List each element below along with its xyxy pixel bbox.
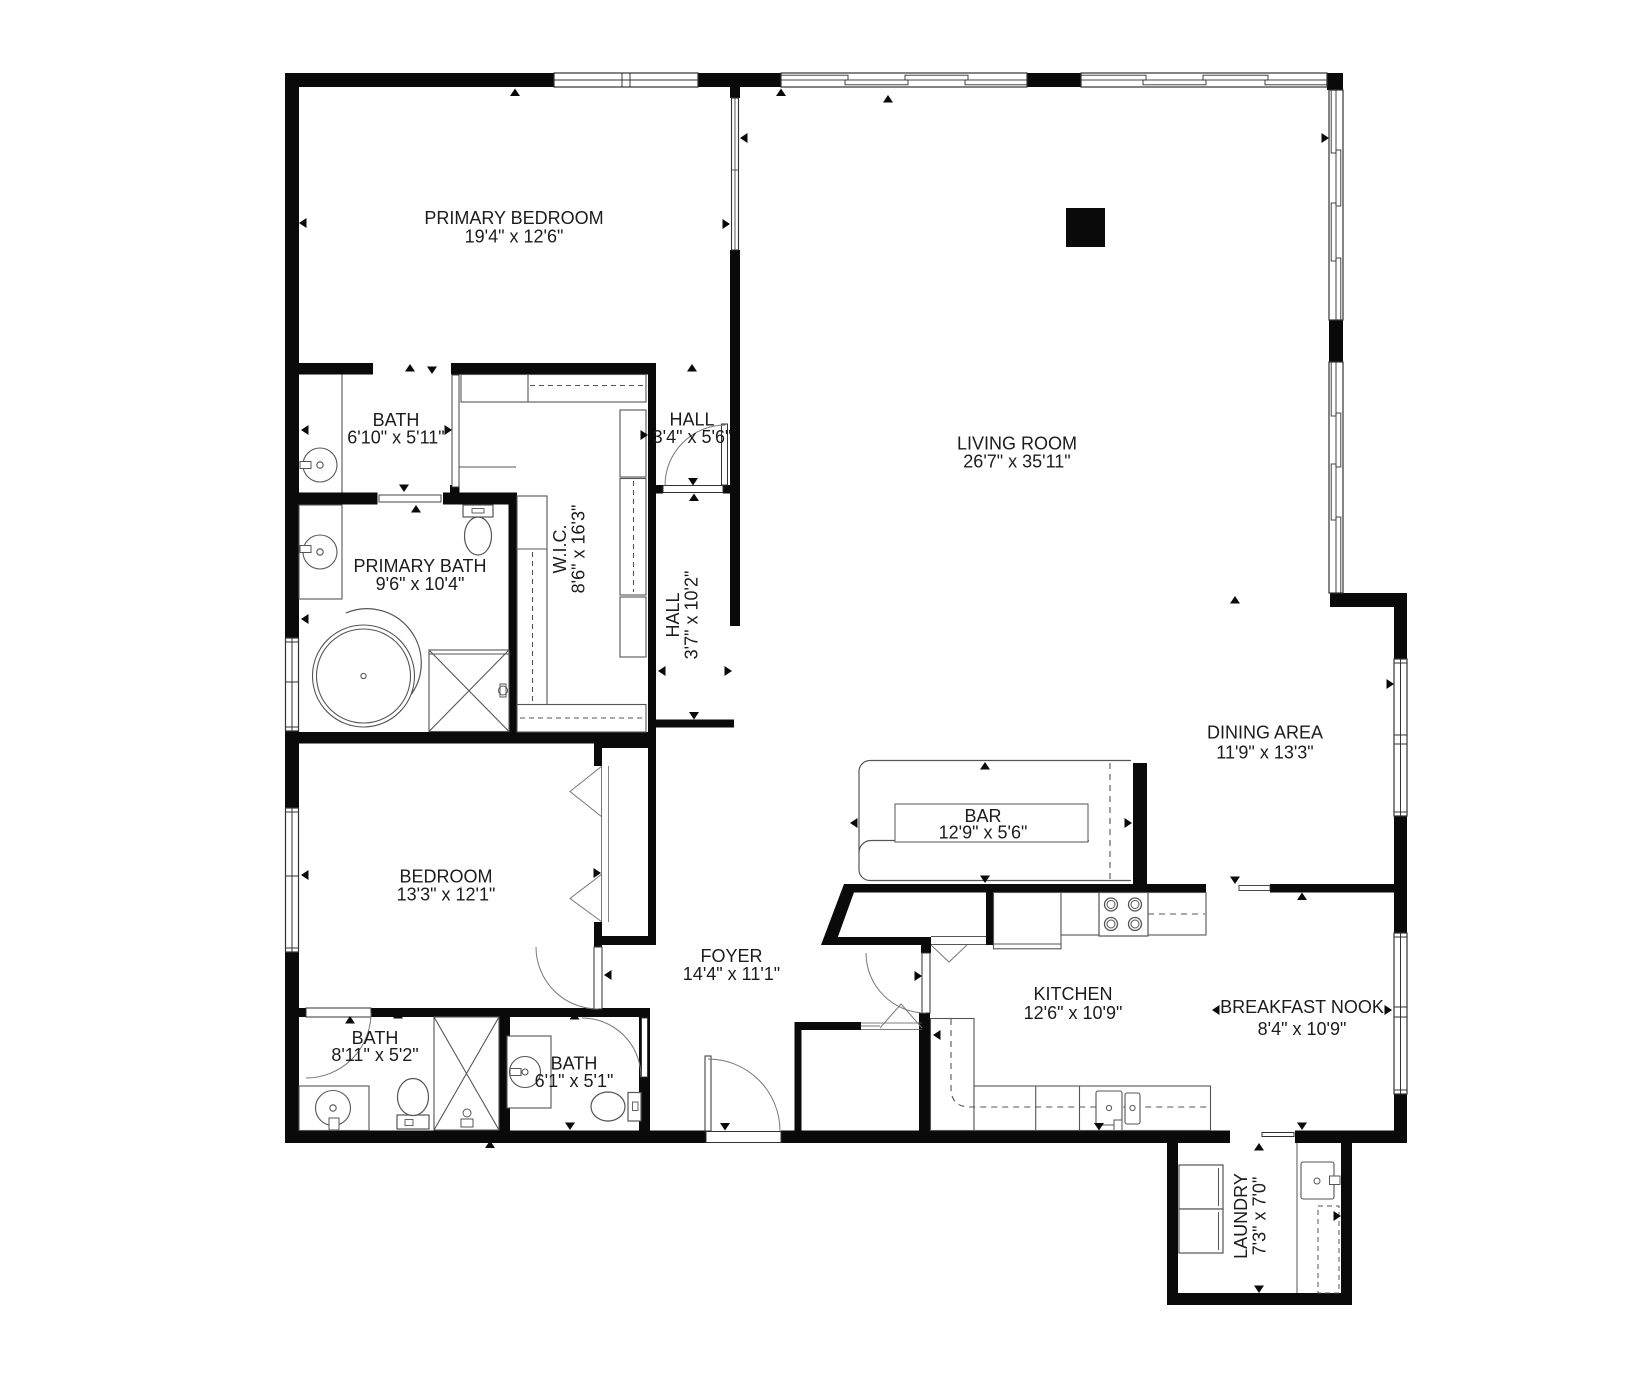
svg-text:HALL: HALL [663,592,683,637]
svg-text:9'6" x 10'4": 9'6" x 10'4" [376,574,465,594]
svg-text:3'4" x 5'6": 3'4" x 5'6" [653,427,732,447]
svg-text:LAUNDRY: LAUNDRY [1231,1173,1251,1259]
svg-text:12'9" x 5'6": 12'9" x 5'6" [939,823,1028,843]
svg-text:26'7" x 35'11": 26'7" x 35'11" [963,452,1070,472]
svg-text:19'4" x 12'6": 19'4" x 12'6" [465,227,564,247]
svg-text:3'7" x 10'2": 3'7" x 10'2" [682,571,702,660]
svg-text:PRIMARY BEDROOM: PRIMARY BEDROOM [424,208,603,228]
svg-text:8'6" x 16'3": 8'6" x 16'3" [569,505,589,594]
svg-text:14'4" x 11'1": 14'4" x 11'1" [683,964,780,984]
svg-text:11'9" x 13'3": 11'9" x 13'3" [1216,743,1313,763]
svg-text:KITCHEN: KITCHEN [1033,984,1112,1004]
svg-text:8'11" x 5'2": 8'11" x 5'2" [331,1045,418,1065]
svg-text:8'4" x 10'9": 8'4" x 10'9" [1258,1019,1347,1039]
svg-text:PRIMARY BATH: PRIMARY BATH [353,556,486,576]
svg-text:13'3" x 12'1": 13'3" x 12'1" [397,885,496,905]
svg-text:BEDROOM: BEDROOM [399,867,492,887]
svg-text:W.I.C.: W.I.C. [550,525,570,574]
svg-text:LIVING ROOM: LIVING ROOM [957,434,1077,454]
svg-text:6'10" x 5'11": 6'10" x 5'11" [347,428,444,448]
svg-text:7'3" x 7'0": 7'3" x 7'0" [1250,1177,1270,1256]
svg-text:6'1" x 5'1": 6'1" x 5'1" [535,1071,614,1091]
svg-text:BREAKFAST NOOK: BREAKFAST NOOK [1220,997,1384,1017]
svg-text:12'6" x 10'9": 12'6" x 10'9" [1024,1003,1123,1023]
svg-text:FOYER: FOYER [700,946,762,966]
svg-text:DINING AREA: DINING AREA [1207,723,1323,743]
